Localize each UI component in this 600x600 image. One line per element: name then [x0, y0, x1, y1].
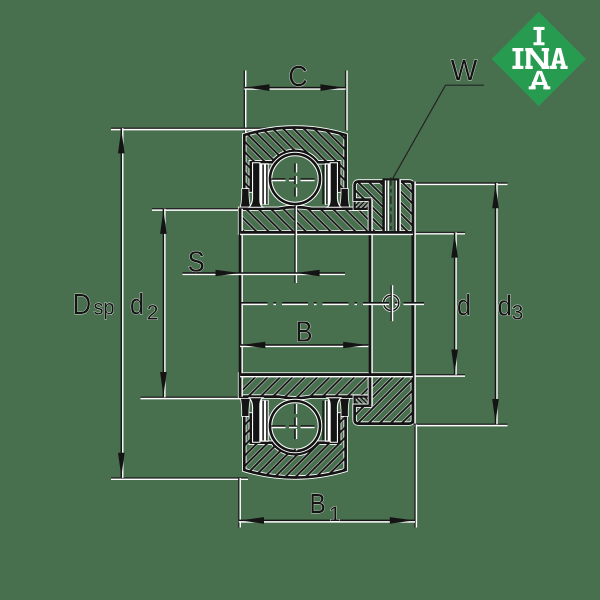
svg-text:d: d — [457, 288, 471, 321]
svg-text:d: d — [130, 287, 144, 320]
svg-text:W: W — [451, 55, 478, 87]
svg-text:B: B — [296, 315, 313, 348]
svg-text:3: 3 — [512, 302, 524, 325]
svg-text:sp: sp — [93, 296, 114, 320]
svg-text:C: C — [288, 60, 307, 92]
svg-text:S: S — [188, 245, 205, 278]
svg-text:d: d — [498, 289, 512, 322]
svg-text:B: B — [309, 487, 325, 519]
svg-text:D: D — [73, 287, 91, 320]
svg-text:2: 2 — [147, 302, 159, 325]
svg-text:1: 1 — [329, 503, 341, 526]
